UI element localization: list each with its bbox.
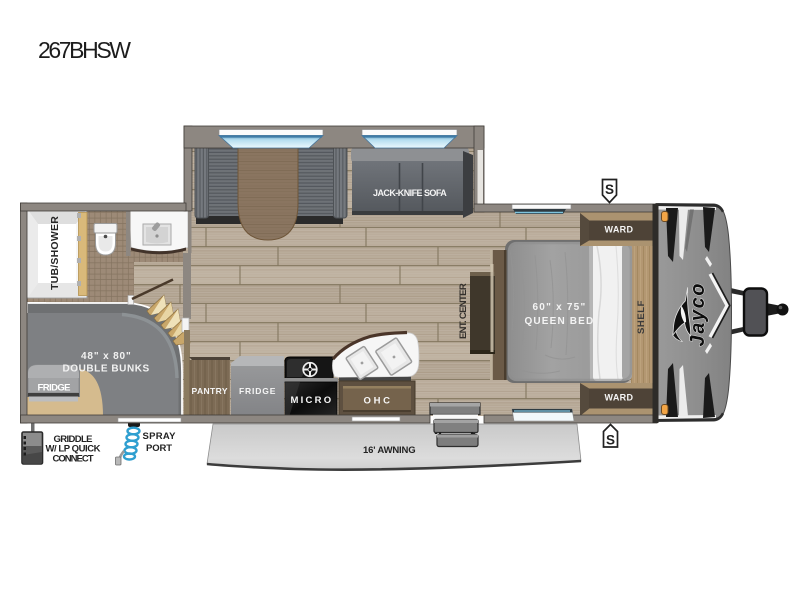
svg-text:PANTRY: PANTRY <box>192 386 228 396</box>
svg-text:48" x 80": 48" x 80" <box>81 351 131 362</box>
svg-text:FRIDGE: FRIDGE <box>239 386 276 396</box>
svg-text:SHELF: SHELF <box>636 300 647 334</box>
svg-text:CONNECT: CONNECT <box>53 454 94 465</box>
svg-text:DOUBLE BUNKS: DOUBLE BUNKS <box>63 364 150 375</box>
svg-text:MICRO: MICRO <box>291 395 332 406</box>
svg-text:60" x 75": 60" x 75" <box>533 302 586 313</box>
svg-text:16' AWNING: 16' AWNING <box>363 445 416 456</box>
svg-text:PORT: PORT <box>146 443 172 454</box>
svg-text:TUB/SHOWER: TUB/SHOWER <box>49 216 61 290</box>
svg-text:SPRAY: SPRAY <box>143 431 177 442</box>
svg-text:ENT. CENTER: ENT. CENTER <box>458 283 469 339</box>
svg-text:267BHSW: 267BHSW <box>38 37 131 63</box>
svg-text:QUEEN BED: QUEEN BED <box>525 316 594 327</box>
svg-text:FRIDGE: FRIDGE <box>38 383 71 394</box>
svg-text:Jayco: Jayco <box>687 284 709 347</box>
svg-text:WARD: WARD <box>605 393 634 403</box>
svg-text:S: S <box>605 182 614 197</box>
svg-text:OHC: OHC <box>364 396 391 407</box>
svg-text:WARD: WARD <box>605 225 634 235</box>
svg-text:S: S <box>606 433 615 448</box>
svg-text:JACK-KNIFE SOFA: JACK-KNIFE SOFA <box>373 188 447 198</box>
